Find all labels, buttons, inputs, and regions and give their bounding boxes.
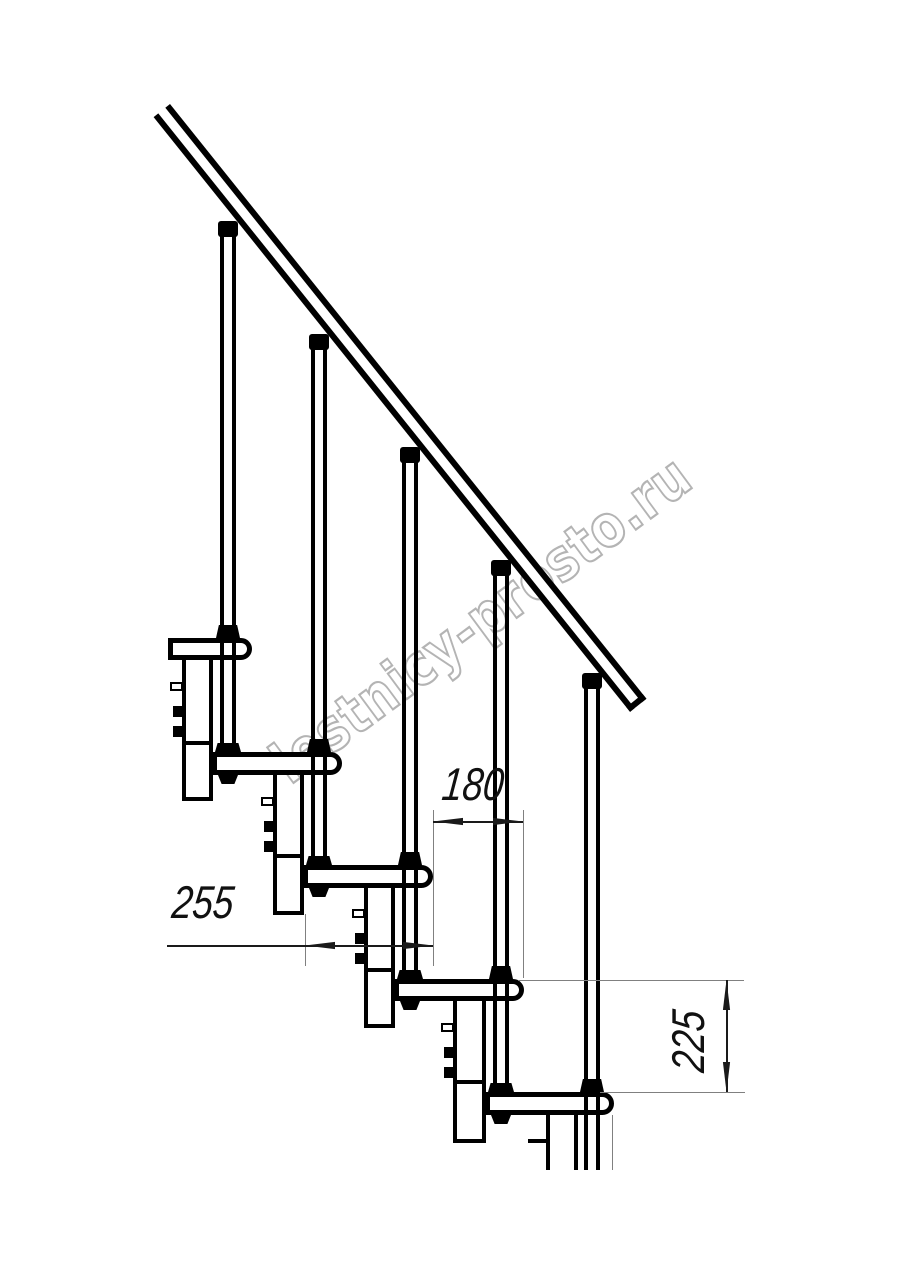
baluster-shaft bbox=[311, 349, 327, 865]
dimension-going-value: 180 bbox=[440, 761, 506, 807]
baluster-nut bbox=[309, 888, 329, 897]
baluster-tread-collar bbox=[307, 739, 331, 752]
staircase-fragment-drawing: lestnicy-prosto.ru 180 255 225 bbox=[0, 0, 914, 1280]
baluster-shaft bbox=[584, 688, 600, 1170]
extension-line bbox=[518, 980, 744, 981]
module-joint-line bbox=[273, 854, 304, 858]
baluster-tread-collar bbox=[580, 1079, 604, 1092]
module-bracket bbox=[441, 1023, 454, 1032]
dimension-tread-depth-value: 255 bbox=[170, 879, 236, 925]
baluster-rail-collar bbox=[309, 334, 329, 350]
baluster-rail-collar bbox=[582, 673, 602, 689]
baluster-base-flange bbox=[215, 743, 241, 752]
baluster-nut bbox=[400, 1001, 420, 1010]
baluster-tread-collar bbox=[216, 625, 240, 638]
tread bbox=[168, 638, 252, 660]
module-joint-line bbox=[453, 1080, 486, 1084]
baluster-shaft bbox=[402, 462, 418, 979]
dimension-arrow-up-icon bbox=[722, 980, 731, 1010]
baluster-rail-collar bbox=[400, 447, 420, 463]
extension-line bbox=[523, 810, 524, 978]
module-bolt bbox=[264, 841, 274, 852]
module-bolt bbox=[355, 933, 365, 944]
module-bolt bbox=[355, 953, 365, 964]
baluster-rail-collar bbox=[491, 560, 511, 576]
support-module bbox=[364, 887, 395, 1028]
dimension-arrow-down-icon bbox=[722, 1062, 731, 1092]
fragment-cut-line bbox=[612, 1115, 613, 1170]
baluster-nut bbox=[218, 775, 238, 784]
module-bolt bbox=[264, 821, 274, 832]
baluster-tread-collar bbox=[489, 966, 513, 979]
baluster-shaft bbox=[220, 236, 236, 752]
dimension-riser-value: 225 bbox=[665, 1008, 711, 1074]
extension-line bbox=[305, 914, 306, 966]
baluster-base-flange bbox=[488, 1083, 514, 1092]
module-bolt bbox=[173, 706, 183, 717]
baluster-base-flange bbox=[306, 856, 332, 865]
baluster-tread-collar bbox=[398, 852, 422, 865]
module-bolt bbox=[444, 1067, 454, 1078]
extension-line bbox=[433, 810, 434, 966]
extension-line bbox=[600, 1092, 745, 1093]
dimension-line bbox=[167, 945, 433, 947]
baluster-rail-collar bbox=[218, 221, 238, 237]
support-module bbox=[273, 775, 304, 915]
module-bolt bbox=[173, 726, 183, 737]
fragment-cut-line bbox=[528, 1139, 547, 1143]
dimension-arrow-left-icon bbox=[305, 941, 335, 950]
module-bracket bbox=[261, 797, 274, 806]
baluster-base-flange bbox=[397, 970, 423, 979]
module-joint-line bbox=[364, 968, 395, 972]
baluster-nut bbox=[491, 1115, 511, 1124]
module-joint-line bbox=[182, 741, 213, 745]
dimension-arrow-left-icon bbox=[433, 817, 463, 826]
support-module bbox=[453, 1001, 486, 1143]
dimension-riser-wrap: 225 bbox=[665, 996, 711, 1076]
module-bolt bbox=[444, 1047, 454, 1058]
baluster-shaft bbox=[493, 575, 509, 1092]
support-module bbox=[182, 660, 213, 801]
module-bracket bbox=[170, 682, 183, 691]
support-module bbox=[546, 1114, 578, 1170]
module-bracket bbox=[352, 909, 365, 918]
